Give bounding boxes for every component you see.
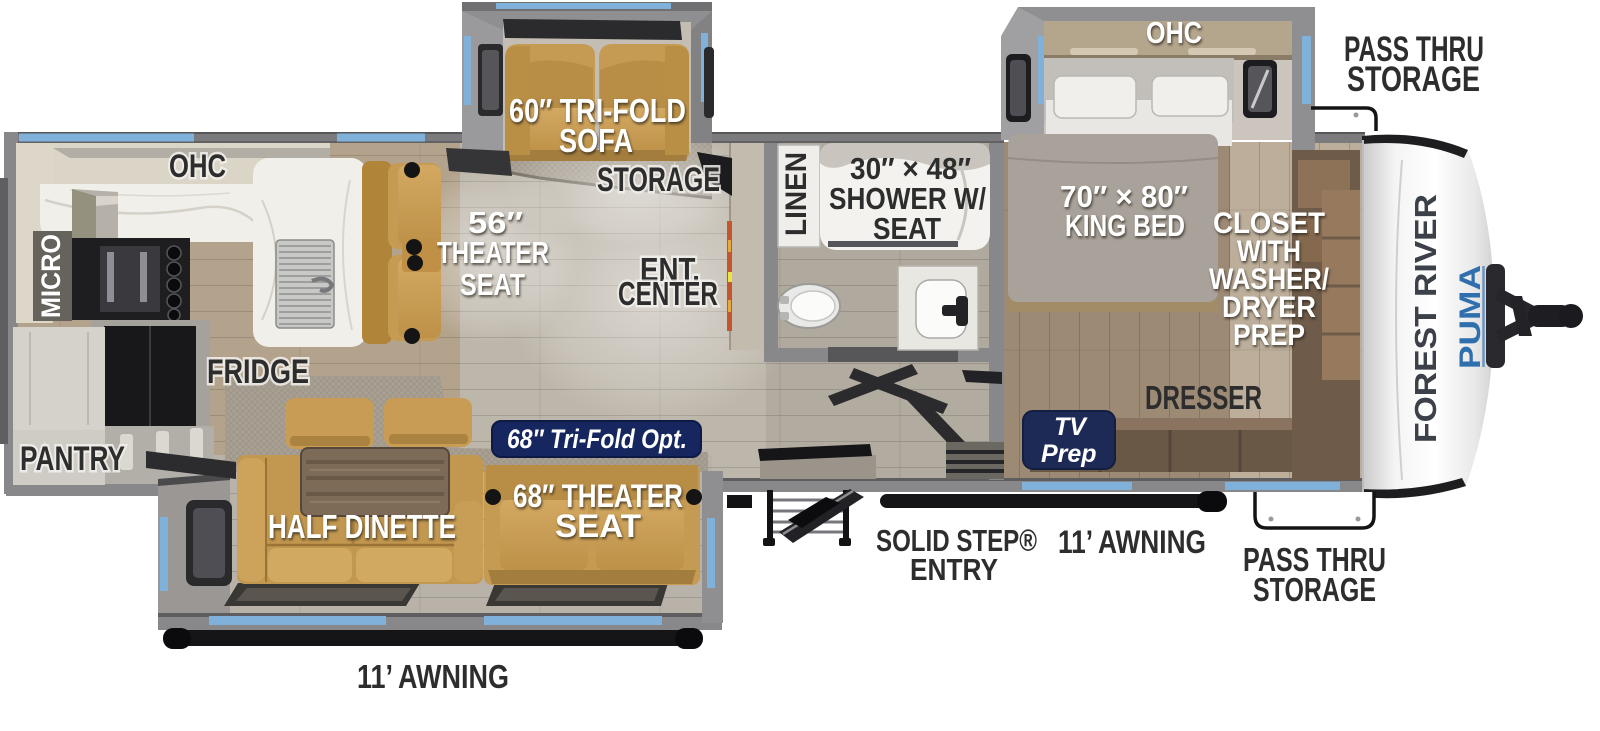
- svg-text:PREP: PREP: [1233, 319, 1305, 352]
- svg-text:68″ Tri-Fold Opt.: 68″ Tri-Fold Opt.: [507, 424, 687, 454]
- svg-text:SEAT: SEAT: [460, 267, 525, 302]
- svg-text:STORAGE: STORAGE: [1347, 60, 1480, 99]
- svg-text:STORAGE: STORAGE: [1253, 571, 1376, 608]
- svg-text:HALF DINETTE: HALF DINETTE: [268, 508, 456, 545]
- svg-text:PANTRY: PANTRY: [20, 440, 125, 478]
- svg-text:OHC: OHC: [1146, 15, 1202, 50]
- svg-text:FOREST RIVER: FOREST RIVER: [1408, 194, 1443, 443]
- svg-text:TV: TV: [1054, 413, 1088, 441]
- svg-text:PUMA: PUMA: [1454, 265, 1487, 369]
- svg-text:LINEN: LINEN: [780, 152, 813, 236]
- svg-text:SEAT: SEAT: [555, 508, 641, 544]
- svg-text:SEAT: SEAT: [873, 211, 941, 246]
- svg-text:MICRO: MICRO: [36, 234, 66, 318]
- svg-text:ENTRY: ENTRY: [910, 552, 998, 587]
- svg-text:FRIDGE: FRIDGE: [207, 353, 309, 391]
- svg-text:11’ AWNING: 11’ AWNING: [357, 658, 509, 695]
- svg-text:STORAGE: STORAGE: [597, 161, 720, 199]
- svg-text:THEATER: THEATER: [437, 235, 549, 270]
- svg-text:DRESSER: DRESSER: [1145, 379, 1262, 416]
- svg-text:KING BED: KING BED: [1065, 208, 1185, 243]
- svg-text:OHC: OHC: [169, 148, 226, 184]
- svg-text:Prep: Prep: [1041, 440, 1097, 468]
- svg-text:11’ AWNING: 11’ AWNING: [1058, 524, 1206, 560]
- svg-text:CENTER: CENTER: [618, 275, 718, 312]
- svg-text:SOFA: SOFA: [559, 122, 633, 159]
